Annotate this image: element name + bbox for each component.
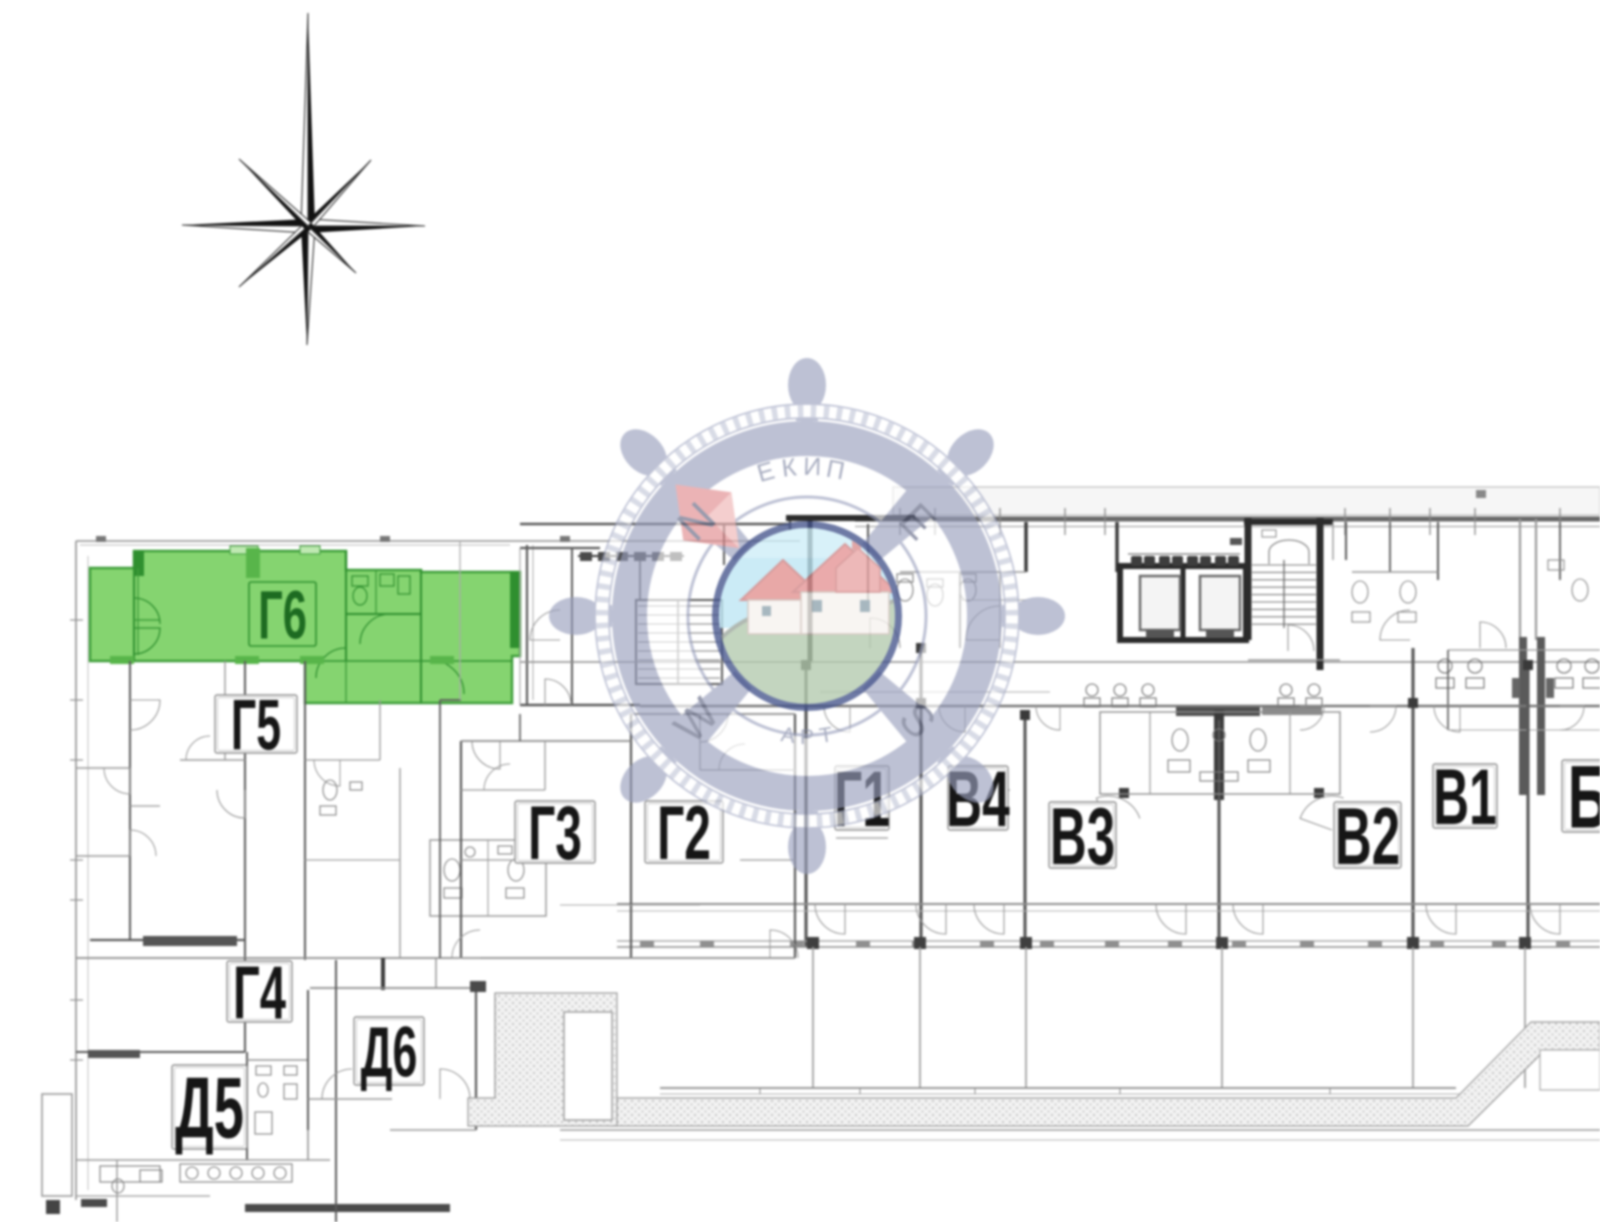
svg-text:И: И — [803, 453, 822, 482]
svg-text:Г3: Г3 — [528, 792, 582, 876]
svg-text:Г5: Г5 — [231, 685, 281, 765]
svg-text:В2: В2 — [1335, 792, 1400, 882]
svg-text:Г2: Г2 — [657, 792, 711, 876]
svg-text:Д6: Д6 — [361, 1012, 418, 1092]
svg-text:Д5: Д5 — [175, 1061, 244, 1157]
svg-text:В1: В1 — [1433, 752, 1497, 841]
svg-text:Р: Р — [800, 726, 814, 749]
svg-text:Г4: Г4 — [233, 951, 286, 1035]
svg-text:Г6: Г6 — [258, 578, 307, 655]
svg-text:В3: В3 — [1050, 792, 1115, 882]
svg-text:Б: Б — [1568, 747, 1600, 846]
